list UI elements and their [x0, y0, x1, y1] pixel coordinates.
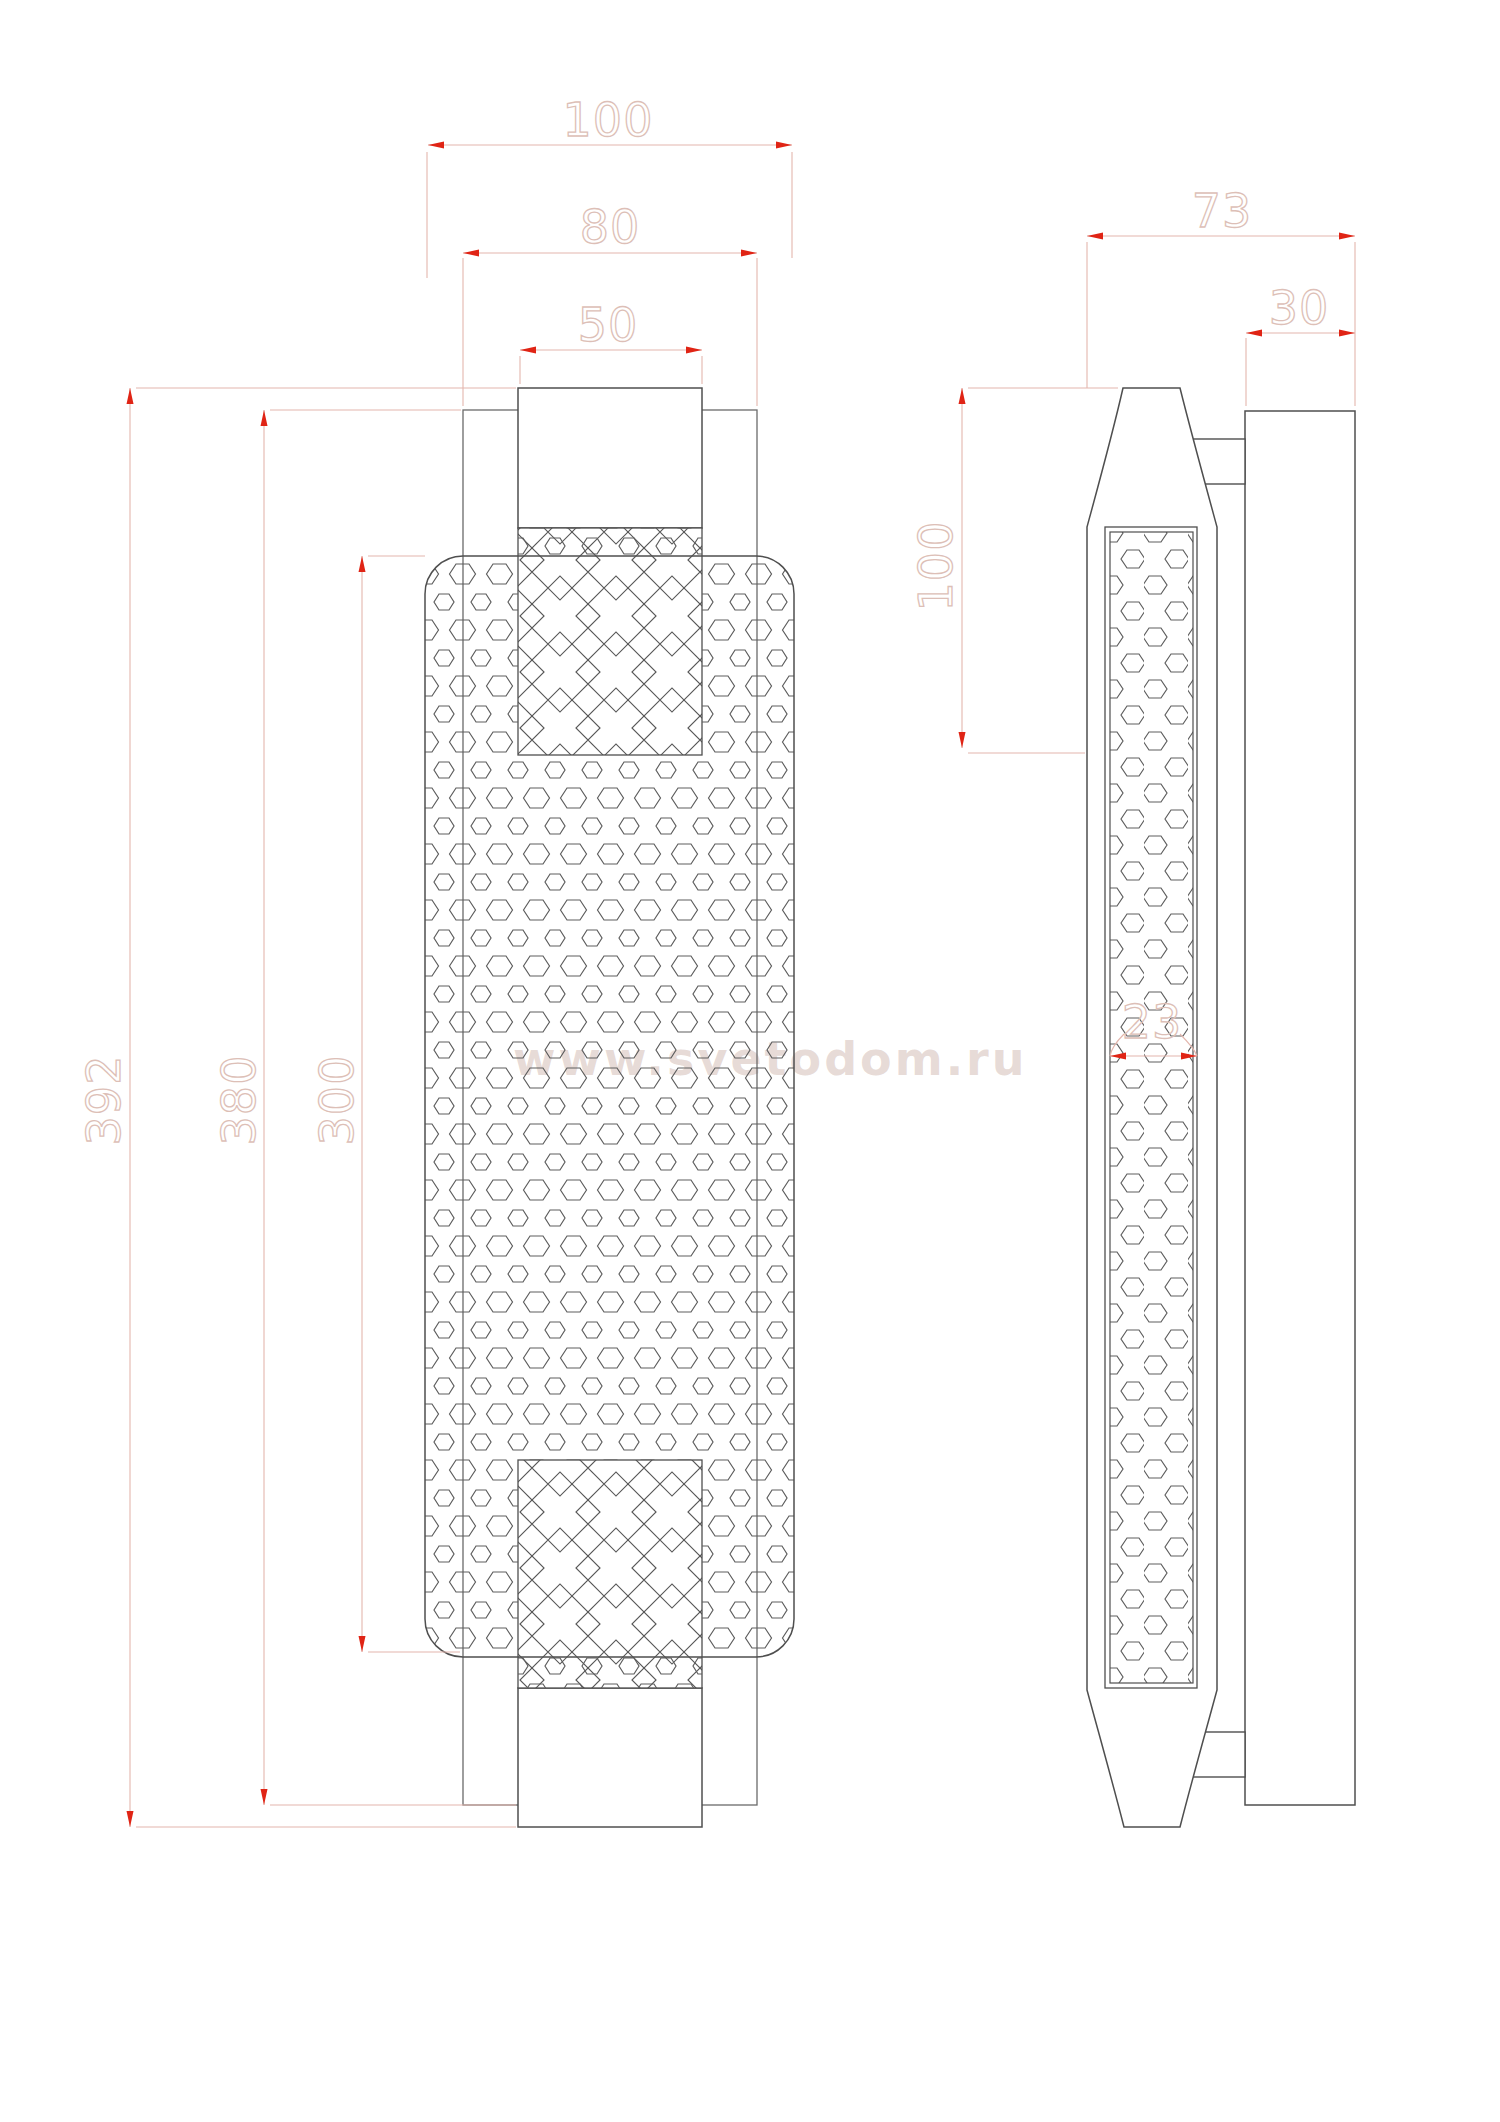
front-top-cap [518, 388, 702, 528]
front-view [425, 388, 794, 1827]
technical-drawing-page: www.svetodom.ru [0, 0, 1500, 2122]
dim-side-cap-height: 100 [909, 521, 963, 612]
dim-front-backplate-height: 380 [212, 1055, 266, 1146]
front-top-knurl [518, 528, 702, 755]
dim-front-backplate-width: 80 [580, 200, 641, 254]
front-bottom-cap [518, 1688, 702, 1827]
dim-side-wallplate-depth: 30 [1269, 281, 1330, 335]
dim-front-overall-height: 392 [77, 1055, 131, 1146]
dim-side-overall-depth: 73 [1192, 184, 1253, 238]
dim-front-cap-width: 50 [578, 298, 639, 352]
side-view [1087, 388, 1355, 1827]
dim-side-tube-depth: 23 [1122, 995, 1183, 1049]
front-bottom-knurl [518, 1460, 702, 1688]
side-wall-plate [1245, 411, 1355, 1805]
dim-front-overall-width: 100 [563, 93, 654, 147]
side-glass-inner [1110, 532, 1193, 1683]
dim-front-glass-height: 300 [310, 1055, 364, 1146]
